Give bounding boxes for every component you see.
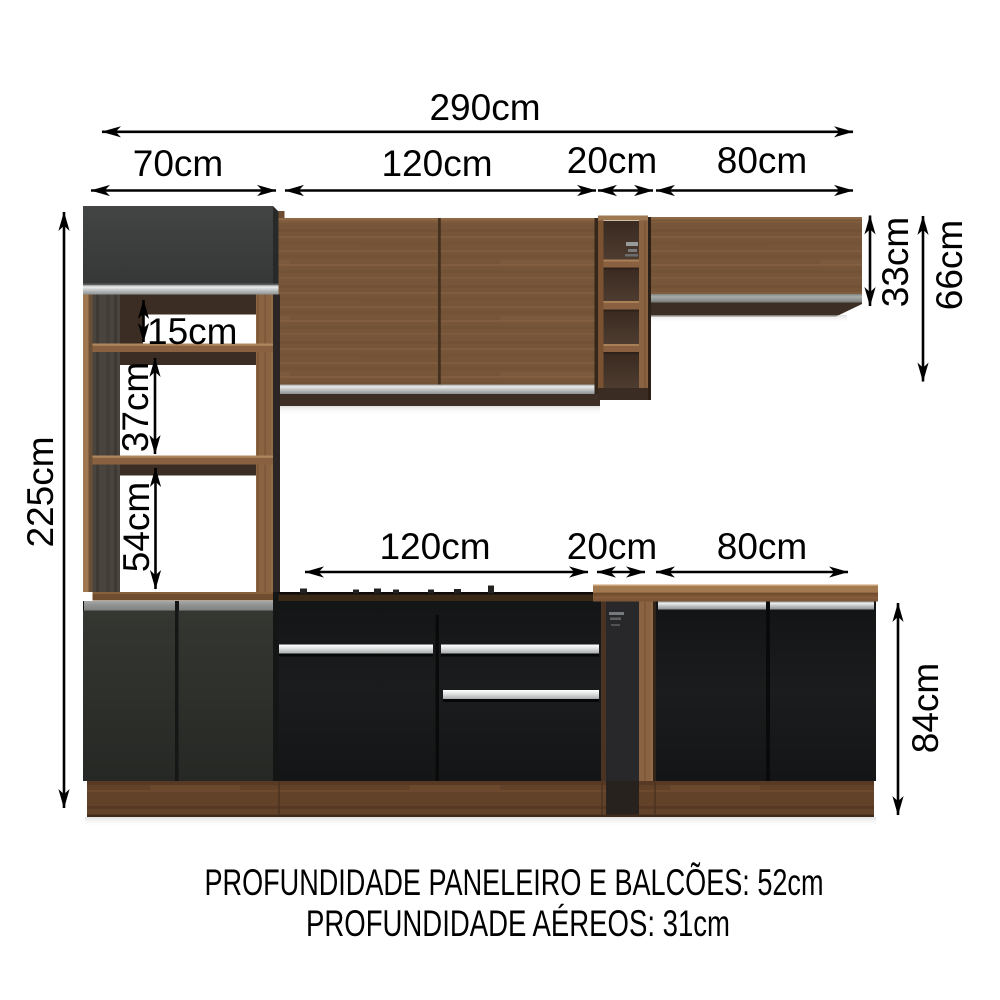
svg-text:20cm: 20cm [567, 140, 657, 181]
svg-text:80cm: 80cm [717, 526, 807, 567]
svg-text:33cm: 33cm [875, 217, 916, 307]
svg-text:54cm: 54cm [116, 482, 157, 572]
svg-text:225cm: 225cm [20, 436, 61, 547]
svg-text:66cm: 66cm [929, 220, 970, 310]
svg-text:120cm: 120cm [381, 143, 492, 184]
svg-text:84cm: 84cm [905, 663, 946, 753]
svg-text:PROFUNDIDADE PANELEIRO E BALCÕ: PROFUNDIDADE PANELEIRO E BALCÕES: 52cm [205, 862, 824, 903]
svg-text:80cm: 80cm [717, 140, 807, 181]
svg-text:15cm: 15cm [147, 311, 237, 352]
svg-text:37cm: 37cm [115, 362, 156, 452]
svg-text:290cm: 290cm [429, 87, 540, 128]
svg-text:20cm: 20cm [567, 526, 657, 567]
svg-text:120cm: 120cm [379, 526, 490, 567]
svg-text:PROFUNDIDADE AÉREOS: 31cm: PROFUNDIDADE AÉREOS: 31cm [306, 903, 730, 944]
svg-text:70cm: 70cm [133, 143, 223, 184]
